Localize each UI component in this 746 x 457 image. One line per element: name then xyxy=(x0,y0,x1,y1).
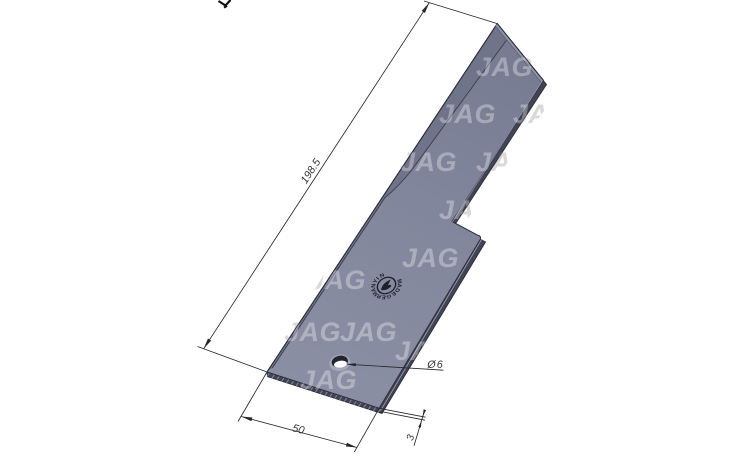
svg-text:Ø6: Ø6 xyxy=(426,359,443,371)
svg-text:JAG: JAG xyxy=(402,243,459,273)
svg-text:JAG: JAG xyxy=(439,99,496,129)
svg-text:JAG: JAG xyxy=(340,317,397,347)
